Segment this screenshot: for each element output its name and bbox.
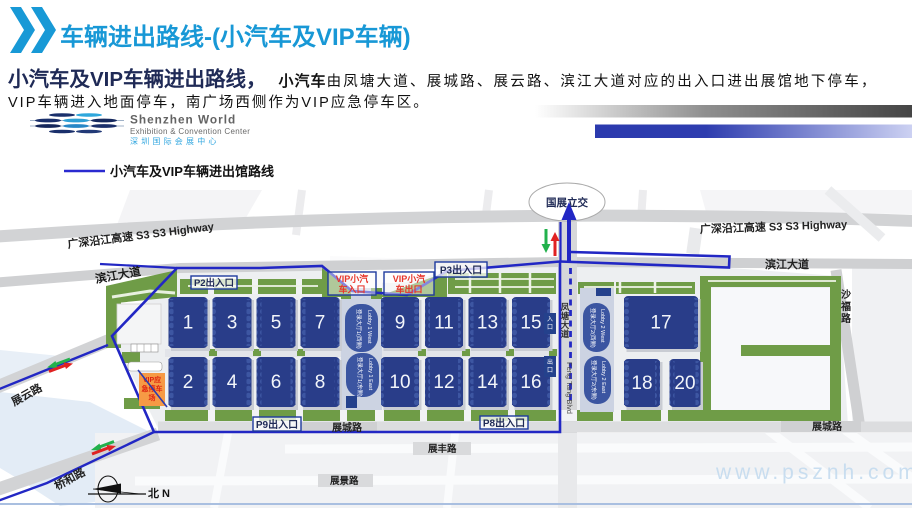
svg-text:P9出入口: P9出入口 bbox=[256, 418, 298, 431]
svg-text:路: 路 bbox=[841, 312, 852, 325]
svg-text:Lobby 1 East: Lobby 1 East bbox=[367, 358, 373, 391]
svg-text:5: 5 bbox=[271, 313, 282, 334]
svg-text:车入口: 车入口 bbox=[338, 284, 365, 295]
svg-text:P3出入口: P3出入口 bbox=[440, 264, 482, 277]
svg-text:10: 10 bbox=[389, 372, 410, 393]
svg-text:20: 20 bbox=[674, 373, 695, 394]
svg-text:7: 7 bbox=[315, 313, 326, 334]
svg-text:18: 18 bbox=[631, 373, 652, 394]
svg-text:出: 出 bbox=[547, 358, 553, 366]
svg-text:1: 1 bbox=[183, 313, 194, 334]
svg-text:www.psznh.com: www.psznh.com bbox=[715, 461, 912, 484]
svg-text:15: 15 bbox=[520, 313, 541, 334]
svg-text:17: 17 bbox=[650, 313, 671, 334]
svg-text:16: 16 bbox=[520, 372, 541, 393]
svg-text:P2出入口: P2出入口 bbox=[194, 277, 234, 289]
svg-text:展景路: 展景路 bbox=[330, 475, 359, 487]
svg-text:2: 2 bbox=[183, 372, 194, 393]
svg-text:北 N: 北 N bbox=[148, 486, 170, 500]
svg-text:Shenzhen World: Shenzhen World bbox=[130, 113, 236, 127]
svg-text:6: 6 bbox=[271, 372, 282, 393]
svg-text:口: 口 bbox=[547, 367, 553, 374]
svg-text:11: 11 bbox=[434, 313, 454, 334]
svg-text:场: 场 bbox=[149, 393, 156, 402]
svg-text:Exhibition & Convention Center: Exhibition & Convention Center bbox=[130, 127, 250, 136]
svg-text:福: 福 bbox=[840, 300, 851, 313]
svg-text:13: 13 bbox=[477, 313, 498, 334]
svg-text:车出口: 车出口 bbox=[395, 284, 422, 295]
svg-text:VIP小汽: VIP小汽 bbox=[336, 273, 369, 284]
svg-text:口: 口 bbox=[547, 324, 553, 331]
svg-text:登录大厅2(西侧): 登录大厅2(西侧) bbox=[589, 308, 597, 348]
svg-text:Feng Tang Blvd: Feng Tang Blvd bbox=[565, 362, 574, 414]
svg-text:12: 12 bbox=[433, 372, 454, 393]
svg-text:深圳国际会展中心: 深圳国际会展中心 bbox=[130, 136, 220, 146]
svg-text:小汽车及VIP车辆进出馆路线: 小汽车及VIP车辆进出馆路线 bbox=[110, 164, 274, 179]
svg-text:展城路: 展城路 bbox=[812, 420, 843, 433]
svg-text:登录大厅2(东侧): 登录大厅2(东侧) bbox=[590, 360, 598, 400]
svg-text:沙: 沙 bbox=[841, 289, 851, 301]
svg-text:登录大厅1(西侧): 登录大厅1(西侧) bbox=[355, 309, 363, 349]
svg-text:展城路: 展城路 bbox=[332, 421, 363, 434]
svg-text:4: 4 bbox=[227, 372, 238, 393]
svg-text:14: 14 bbox=[477, 372, 499, 393]
svg-text:9: 9 bbox=[395, 313, 406, 334]
svg-text:3: 3 bbox=[227, 313, 238, 334]
svg-text:展丰路: 展丰路 bbox=[428, 443, 457, 455]
svg-text:Lobby 1 West: Lobby 1 West bbox=[366, 310, 372, 344]
svg-text:Lobby 2 West: Lobby 2 West bbox=[599, 309, 605, 343]
svg-text:8: 8 bbox=[315, 372, 326, 393]
svg-text:P8出入口: P8出入口 bbox=[483, 417, 525, 430]
svg-text:滨江大道: 滨江大道 bbox=[765, 257, 809, 271]
svg-text:VIP小汽: VIP小汽 bbox=[393, 273, 426, 284]
svg-text:道: 道 bbox=[561, 329, 570, 339]
svg-text:入: 入 bbox=[547, 316, 553, 323]
svg-text:登录大厅1(东侧): 登录大厅1(东侧) bbox=[356, 357, 364, 397]
svg-text:Lobby 2 East: Lobby 2 East bbox=[600, 361, 606, 394]
